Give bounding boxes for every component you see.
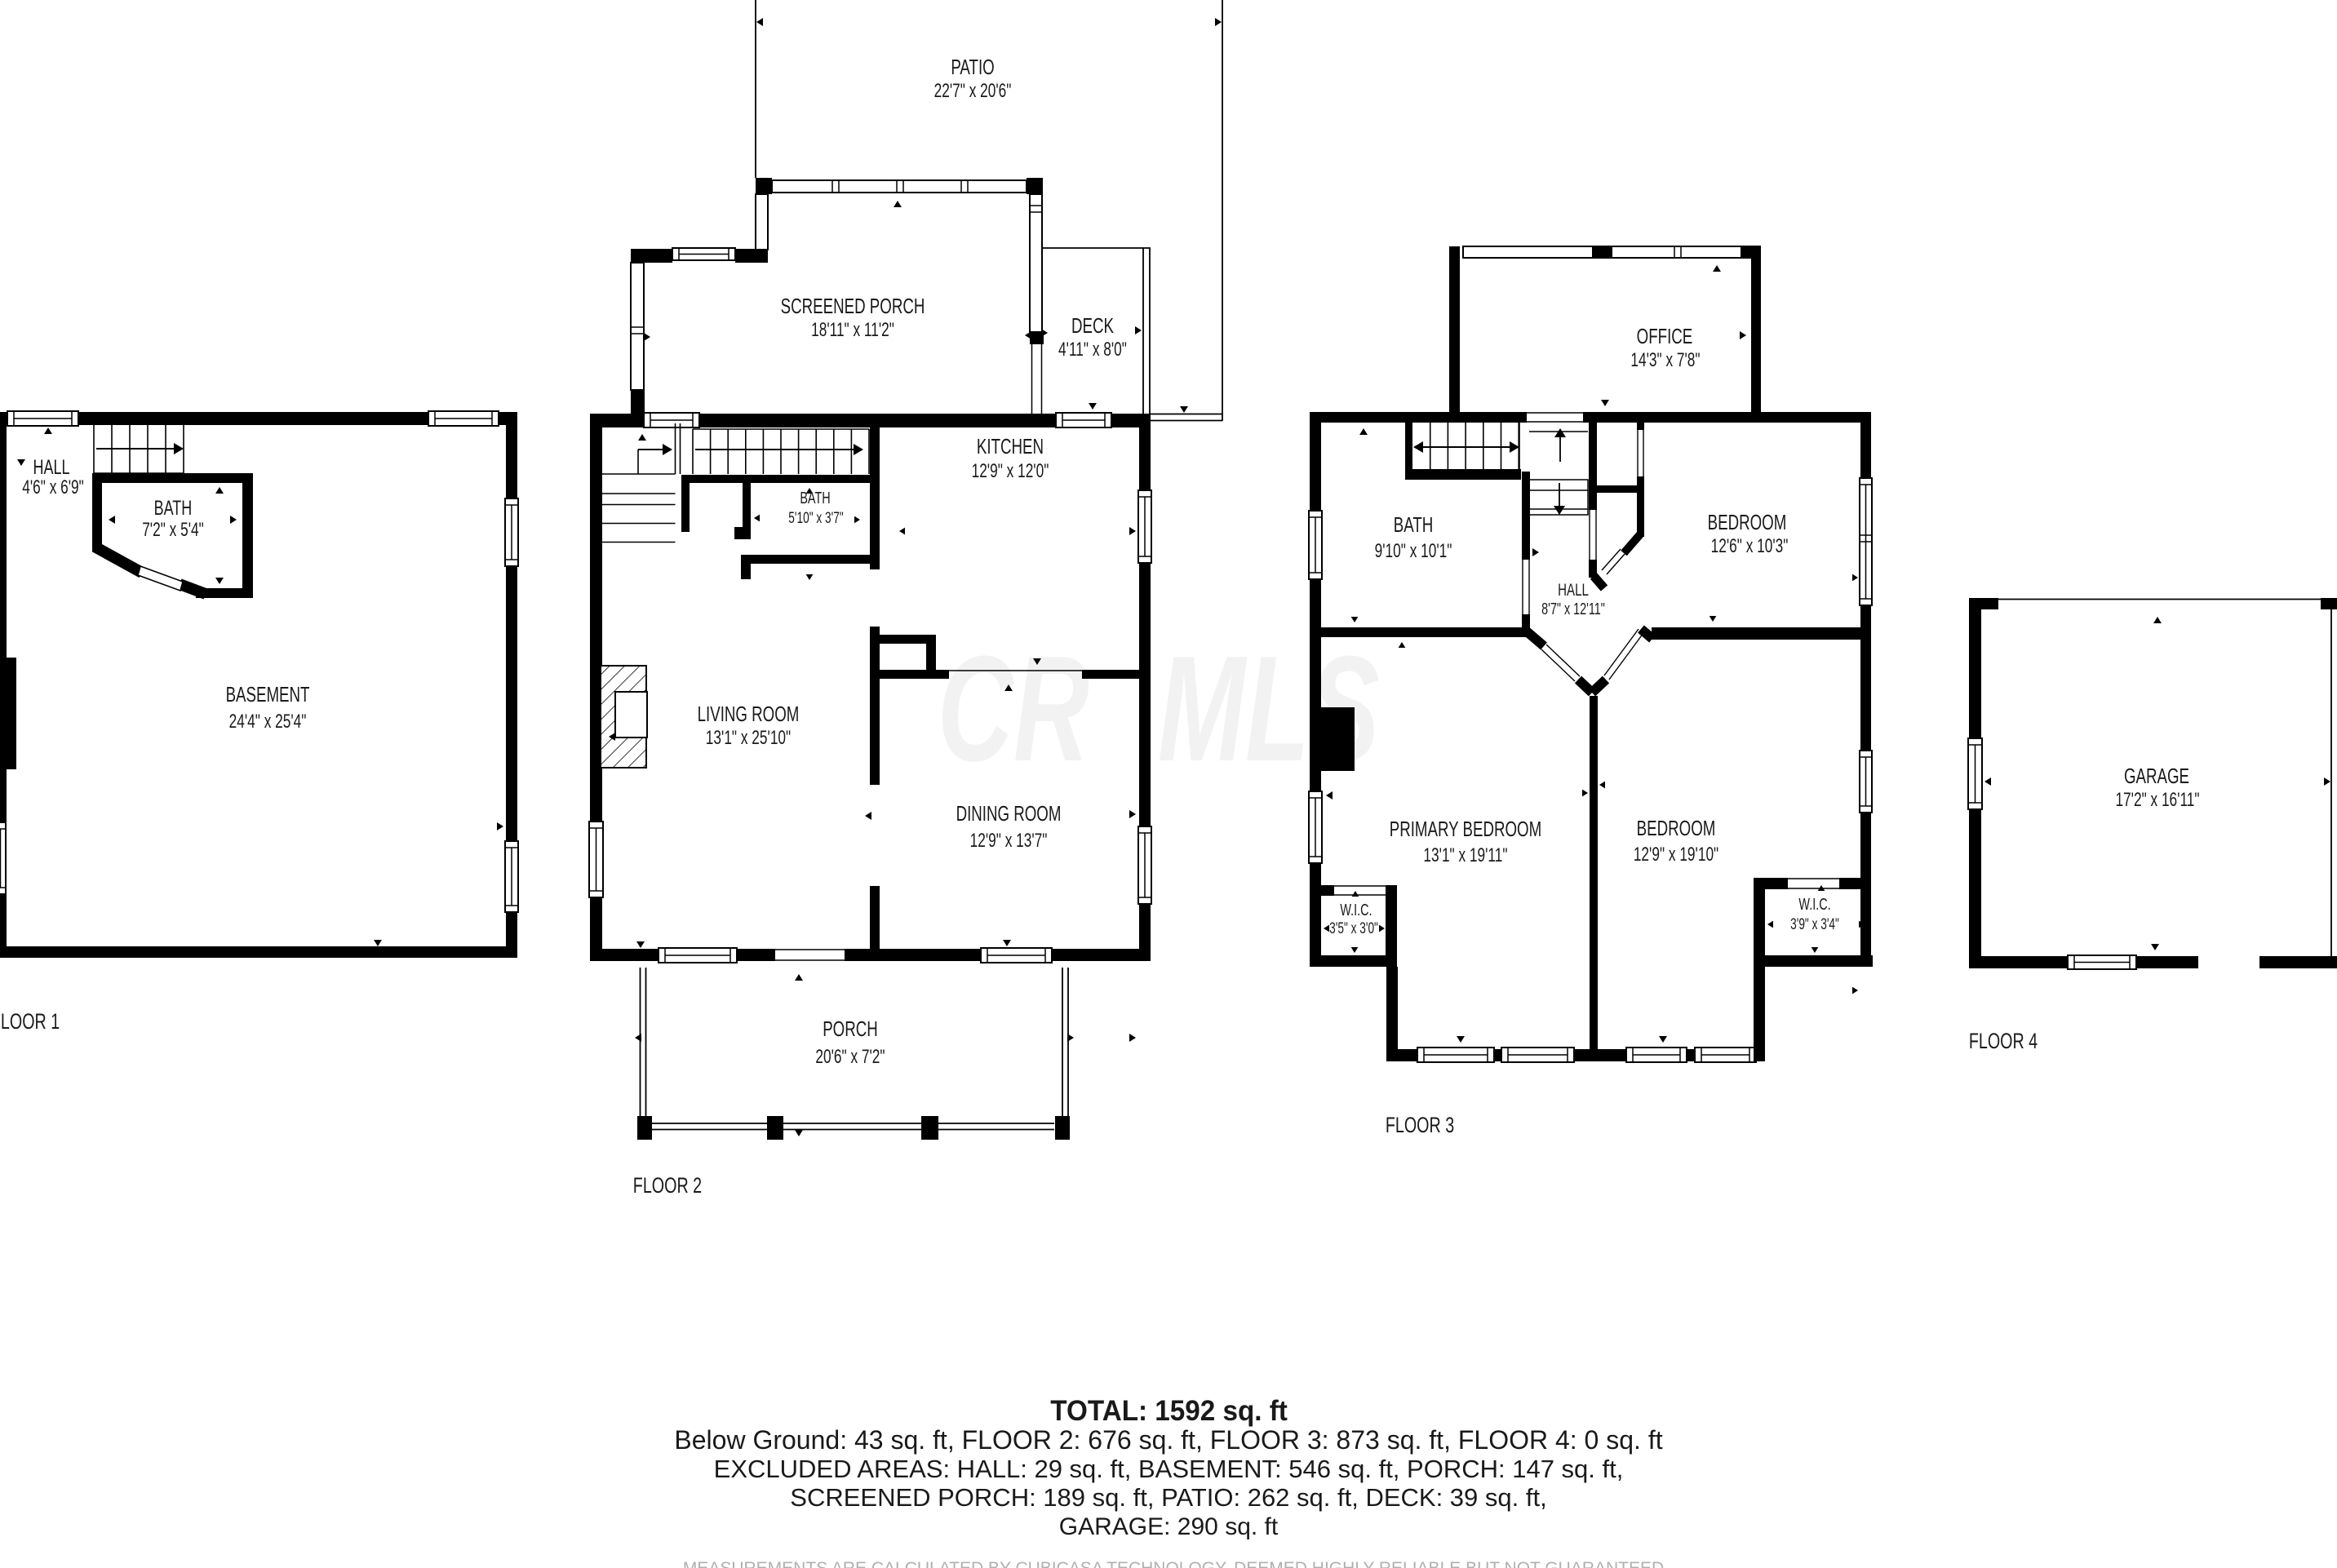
svg-text:22'7" x 20'6": 22'7" x 20'6" [934, 80, 1012, 101]
svg-text:FLOOR 2: FLOOR 2 [633, 1174, 702, 1198]
svg-text:GARAGE: GARAGE [2124, 764, 2189, 788]
svg-text:TOTAL: 1592 sq. ft: TOTAL: 1592 sq. ft [1050, 1395, 1288, 1427]
svg-text:17'2" x 16'11": 17'2" x 16'11" [2115, 789, 2199, 810]
svg-text:20'6" x 7'2": 20'6" x 7'2" [815, 1046, 885, 1067]
svg-text:PORCH: PORCH [823, 1017, 878, 1041]
svg-text:13'1" x 19'11": 13'1" x 19'11" [1423, 844, 1507, 866]
svg-text:9'10" x 10'1": 9'10" x 10'1" [1375, 540, 1452, 561]
svg-text:CR: CR [938, 624, 1089, 792]
svg-text:BATH: BATH [800, 489, 830, 507]
svg-text:3'5" x 3'0": 3'5" x 3'0" [1329, 919, 1378, 937]
svg-text:FLOOR 1: FLOOR 1 [0, 1010, 60, 1034]
svg-text:SCREENED PORCH: 189 sq. ft, PA: SCREENED PORCH: 189 sq. ft, PATIO: 262 s… [790, 1483, 1546, 1512]
svg-text:DINING ROOM: DINING ROOM [956, 801, 1062, 826]
svg-text:DECK: DECK [1071, 313, 1114, 338]
svg-text:Below Ground: 43 sq. ft, FLOOR: Below Ground: 43 sq. ft, FLOOR 2: 676 sq… [674, 1425, 1662, 1455]
svg-text:GARAGE: 290 sq. ft: GARAGE: 290 sq. ft [1059, 1513, 1279, 1540]
svg-text:BEDROOM: BEDROOM [1708, 510, 1787, 534]
svg-text:PRIMARY BEDROOM: PRIMARY BEDROOM [1390, 817, 1541, 841]
svg-text:BEDROOM: BEDROOM [1637, 816, 1716, 840]
svg-text:HALL: HALL [33, 455, 70, 479]
svg-text:BATH: BATH [154, 496, 193, 520]
svg-text:13'1" x 25'10": 13'1" x 25'10" [706, 727, 791, 748]
svg-text:FLOOR 3: FLOOR 3 [1386, 1114, 1454, 1138]
svg-text:5'10" x 3'7": 5'10" x 3'7" [788, 509, 843, 527]
svg-text:12'9" x 12'0": 12'9" x 12'0" [972, 460, 1049, 481]
svg-text:BATH: BATH [1394, 512, 1434, 537]
svg-text:12'9" x 13'7": 12'9" x 13'7" [970, 830, 1048, 851]
svg-text:SCREENED PORCH: SCREENED PORCH [781, 294, 925, 318]
svg-text:FLOOR 4: FLOOR 4 [1969, 1030, 2038, 1054]
svg-text:LIVING ROOM: LIVING ROOM [698, 702, 800, 726]
svg-text:MEASUREMENTS ARE CALCULATED BY: MEASUREMENTS ARE CALCULATED BY CUBICASA … [683, 1559, 1664, 1568]
svg-text:7'2" x 5'4": 7'2" x 5'4" [142, 519, 204, 540]
svg-text:8'7" x 12'11": 8'7" x 12'11" [1541, 600, 1605, 618]
svg-text:W.I.C.: W.I.C. [1340, 901, 1372, 919]
svg-text:3'9" x 3'4": 3'9" x 3'4" [1790, 915, 1839, 933]
svg-text:4'11" x 8'0": 4'11" x 8'0" [1058, 339, 1127, 360]
svg-text:BASEMENT: BASEMENT [226, 682, 310, 706]
svg-text:HALL: HALL [1558, 579, 1589, 599]
svg-text:12'6" x 10'3": 12'6" x 10'3" [1711, 535, 1789, 556]
svg-text:12'9" x 19'10": 12'9" x 19'10" [1634, 844, 1718, 865]
svg-text:KITCHEN: KITCHEN [977, 434, 1044, 458]
svg-text:W.I.C.: W.I.C. [1798, 895, 1830, 914]
svg-text:24'4" x 25'4": 24'4" x 25'4" [229, 711, 307, 732]
svg-text:18'11" x 11'2": 18'11" x 11'2" [811, 319, 894, 340]
svg-text:14'3" x 7'8": 14'3" x 7'8" [1630, 349, 1700, 370]
svg-text:EXCLUDED AREAS: HALL: 29 sq. f: EXCLUDED AREAS: HALL: 29 sq. ft, BASEMEN… [714, 1455, 1624, 1483]
svg-text:4'6" x 6'9": 4'6" x 6'9" [22, 476, 84, 498]
svg-text:OFFICE: OFFICE [1637, 324, 1693, 348]
svg-text:PATIO: PATIO [951, 55, 994, 79]
